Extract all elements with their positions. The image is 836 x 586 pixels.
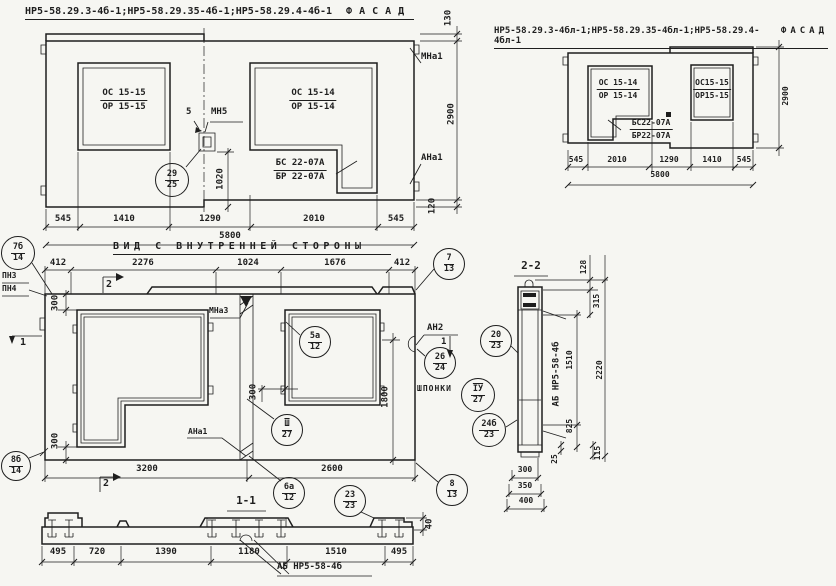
pos-number: 1 [441, 338, 446, 347]
center-rib-strip [240, 294, 253, 460]
dim-300: 300 [250, 384, 259, 400]
callout-bottom: 12 [310, 343, 320, 353]
dim-412: 412 [50, 259, 66, 268]
callout-top: ІУ [471, 385, 485, 396]
dim-300: 300 [52, 295, 61, 311]
callout-24b-23: 24б 23 [472, 413, 506, 447]
section11-notch [240, 535, 252, 541]
anchor-label-mna3: МНа3 [209, 307, 228, 315]
callout-8-13: 8 13 [436, 474, 468, 506]
dim-495: 495 [50, 548, 66, 557]
anchor-label-ana1: АНа1 [421, 154, 443, 163]
callout-bottom: 14 [13, 254, 23, 264]
title-name: ФАСАД [781, 26, 828, 36]
callout-29-25: 29 25 [155, 163, 189, 197]
label-ab-nr5-58-4b: АБ НР5-58-4б [277, 563, 342, 572]
window-mark: ОС 15-15 ОР 15-15 [100, 88, 147, 114]
title-section-1-1: 1-1 [236, 495, 256, 506]
callout-bottom: 27 [282, 431, 292, 441]
callout-6a-12: 6а 12 [273, 477, 305, 509]
dim-2276: 2276 [132, 259, 154, 268]
window-mark: ОС 15-14 ОР 15-14 [597, 78, 640, 101]
facade-left-panel [46, 41, 414, 207]
window-mark: ОС15-15 ОР15-15 [693, 78, 731, 101]
mark-bottom: ОР 15-14 [597, 90, 640, 101]
dim-1290: 1290 [199, 215, 221, 224]
section22-anchor-bar [523, 293, 536, 297]
dim-720: 720 [89, 548, 105, 557]
callout-top: 24б [479, 420, 498, 431]
callout-bottom: 13 [444, 265, 454, 275]
dim-3200: 3200 [136, 465, 158, 474]
callout-top: 7б [11, 243, 25, 254]
section-mark-2: 2 [103, 479, 109, 489]
section22-anchor-bar [523, 303, 536, 307]
window-mark: ОС 15-14 ОР 15-14 [289, 88, 336, 114]
drawing-sheet: НР5-58.29.3-4б-1;НР5-58.29.35-4б-1;НР5-5… [0, 0, 836, 586]
title-section-2-2: 2-2 [521, 260, 541, 271]
anchor-mn5 [199, 133, 215, 151]
dim-2010: 2010 [303, 215, 325, 224]
dim-2600: 2600 [321, 465, 343, 474]
dim-412: 412 [394, 259, 410, 268]
section-arrow [113, 473, 121, 481]
facade-left-parapet [46, 34, 204, 41]
dim-1390: 1390 [155, 548, 177, 557]
mark-top: БС 22-07А [274, 158, 327, 171]
anchor-label-ana1: АНа1 [188, 428, 207, 436]
mark-top: ОС 15-14 [289, 88, 336, 101]
anchor-label-an2: АН2 [427, 324, 443, 333]
callout-bottom: 13 [447, 491, 457, 501]
callout-bottom: 23 [345, 502, 355, 512]
callout-5a-12: 5а 12 [299, 326, 331, 358]
panel-label-pn3: ПН3 [2, 272, 16, 280]
callout-top: 29 [165, 170, 179, 181]
dim-315: 315 [593, 294, 601, 308]
callout-top: 20 [489, 331, 503, 342]
dim-1180: 1180 [238, 548, 260, 557]
callout-bottom: 27 [473, 396, 483, 406]
callout-top: 8 [447, 480, 456, 491]
mark-top: ОС 15-15 [100, 88, 147, 101]
dim-495: 495 [391, 548, 407, 557]
title-facade-left: НР5-58.29.3-4б-1;НР5-58.29.35-4б-1;НР5-5… [25, 6, 414, 20]
section11-ribs [48, 520, 403, 537]
callout-bottom: 25 [167, 181, 177, 191]
an2-anchor-bump [408, 336, 415, 352]
dim-2900: 2900 [782, 86, 790, 105]
section11-slab [42, 527, 413, 544]
title-code: НР5-58.29.3-4б-1;НР5-58.29.35-4б-1;НР5-5… [25, 6, 332, 17]
title-inner-view: ВИД С ВНУТРЕННЕЙ СТОРОНЫ [113, 241, 391, 255]
callout-top: 7 [444, 254, 453, 265]
dim-300: 300 [518, 466, 532, 474]
section-mark-2: 2 [106, 280, 112, 290]
callout-bottom: 23 [491, 342, 501, 352]
callout-26-24: 26 24 [424, 347, 456, 379]
title-facade-right: НР5-58.29.3-4бл-1;НР5-58.29.35-4бл-1;НР5… [494, 26, 828, 49]
section-mark-1: 1 [20, 338, 26, 348]
callout-iii-27: Ш 27 [271, 414, 303, 446]
dim-1290: 1290 [659, 156, 678, 164]
label-shponki: ШПОНКИ [417, 385, 452, 393]
section-arrow [9, 336, 15, 344]
callout-iv-27: ІУ 27 [461, 378, 495, 412]
mark-bottom: БР 22-07А [274, 171, 327, 183]
dim-1510: 1510 [325, 548, 347, 557]
dim-350: 350 [518, 482, 532, 490]
dim-1676: 1676 [324, 259, 346, 268]
callout-top: 26 [433, 353, 447, 364]
dim-120: 120 [429, 198, 438, 214]
sill-mark: БС 22-07А БР 22-07А [274, 158, 327, 184]
callout-bottom: 23 [484, 431, 494, 441]
callout-8b-14: 8б 14 [1, 451, 31, 481]
mark-bottom: ОР 15-14 [289, 101, 336, 113]
section11-mid-block [200, 518, 293, 527]
inner-view-panel [45, 294, 415, 460]
callout-23-23: 23 23 [334, 485, 366, 517]
callout-top: Ш [282, 420, 291, 431]
inner-view-window-right [285, 310, 380, 405]
callout-bottom: 12 [284, 494, 294, 504]
dim-2010: 2010 [607, 156, 626, 164]
rib-strip-flag [240, 296, 252, 307]
dim-1024: 1024 [237, 259, 259, 268]
dim-1410: 1410 [702, 156, 721, 164]
dim-2220: 2220 [596, 360, 604, 379]
dim-25: 25 [551, 454, 559, 464]
facade-right-plug-mark [666, 112, 671, 117]
panel-label-pn4: ПН4 [2, 285, 16, 293]
section-arrow [116, 273, 124, 281]
mark-bottom: ОР 15-15 [100, 101, 147, 113]
dim-545: 545 [737, 156, 751, 164]
dim-128: 128 [580, 260, 588, 274]
anchor-label-mn5: МН5 [211, 108, 227, 117]
dim-545: 545 [388, 215, 404, 224]
callout-top: 8б [9, 456, 23, 467]
dimension-lines [42, 26, 784, 566]
dim-130: 130 [445, 10, 454, 26]
section11-right-block [370, 518, 412, 527]
dim-825: 825 [566, 419, 574, 433]
dim-300: 300 [52, 433, 61, 449]
callout-7b-14: 7б 14 [1, 236, 35, 270]
mark-top: БС22-07А [630, 118, 673, 130]
mark-bottom: БР22-07А [630, 130, 673, 141]
callout-bottom: 14 [11, 467, 21, 477]
callout-7-13: 7 13 [433, 248, 465, 280]
anchor-label-mna1: МНа1 [421, 53, 443, 62]
dim-1410: 1410 [113, 215, 135, 224]
callout-top: 5а [308, 332, 322, 343]
callout-bottom: 24 [435, 364, 445, 374]
dim-545: 545 [569, 156, 583, 164]
dim-40: 40 [426, 519, 435, 530]
section11-key [117, 521, 129, 527]
sill-mark: БС22-07А БР22-07А [630, 118, 673, 141]
pos-number: 5 [186, 108, 191, 117]
title-code: НР5-58.29.3-4бл-1;НР5-58.29.35-4бл-1;НР5… [494, 26, 773, 46]
callout-top: 23 [343, 491, 357, 502]
dim-5800: 5800 [219, 232, 241, 241]
label-ab-nr5-58-4b: АБ НР5-58-4б [553, 341, 562, 406]
dim-1020: 1020 [217, 168, 226, 190]
title-text: ВИД С ВНУТРЕННЕЙ СТОРОНЫ [113, 241, 366, 252]
dim-400: 400 [519, 497, 533, 505]
dim-1510: 1510 [566, 350, 574, 369]
mark-top: ОС 15-14 [597, 78, 640, 90]
callout-20-23: 20 23 [480, 325, 512, 357]
dim-2900: 2900 [448, 103, 457, 125]
dimension-ticks [39, 31, 782, 565]
title-name: ФАСАД [346, 6, 411, 17]
dim-5800: 5800 [650, 171, 669, 179]
dim-545: 545 [55, 215, 71, 224]
mark-bottom: ОР15-15 [693, 90, 731, 101]
dim-115: 115 [594, 446, 602, 460]
dim-1800: 1800 [382, 386, 391, 408]
mark-top: ОС15-15 [693, 78, 731, 90]
callout-top: 6а [282, 483, 296, 494]
